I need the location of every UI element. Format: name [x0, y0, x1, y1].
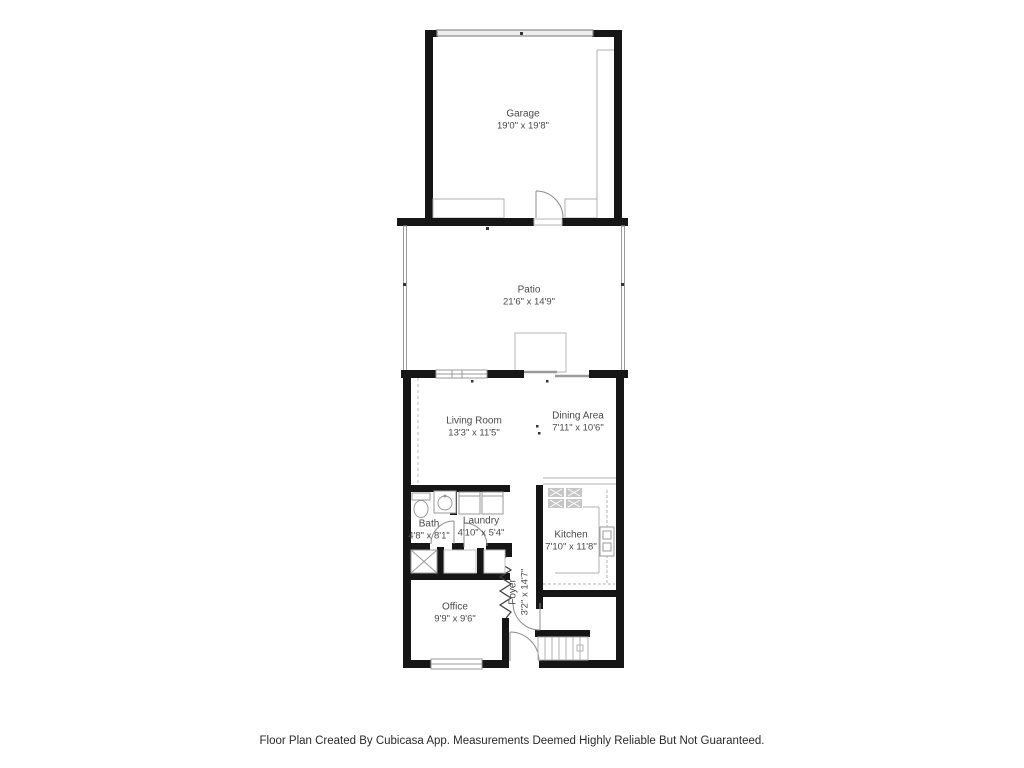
room-label-patio: Patio 21'6" x 14'9": [503, 283, 555, 308]
floor-plan: Garage 19'0" x 19'8" Patio 21'6" x 14'9"…: [0, 0, 1024, 768]
room-label-laundry: Laundry 4'10" x 5'4": [458, 514, 505, 539]
room-dims: 13'3" x 11'5": [446, 427, 502, 439]
living-room-window: [436, 370, 487, 378]
room-label-office: Office 9'9" x 9'6": [434, 600, 476, 625]
room-dims: 21'6" x 14'9": [503, 296, 555, 308]
room-name: Dining Area: [552, 409, 604, 422]
kitchen-appliance: [600, 527, 614, 556]
washer-fixture: [459, 492, 480, 514]
patio-threshold: [534, 219, 562, 225]
room-label-bath: Bath 4'8" x 8'1": [408, 517, 450, 542]
room-dims: 7'10" x 11'8": [545, 541, 596, 553]
patio-landing: [515, 333, 566, 372]
room-dims: 4'10" x 5'4": [458, 527, 505, 539]
room-dims: 3'2" x 14'7": [519, 569, 531, 616]
office-window: [431, 659, 482, 669]
room-label-garage: Garage 19'0" x 19'8": [497, 107, 549, 132]
room-dims: 9'9" x 9'6": [434, 613, 476, 625]
dryer-fixture: [482, 492, 503, 514]
room-label-foyer: Foyer 3'2" x 14'7": [506, 569, 531, 616]
room-name: Laundry: [458, 514, 505, 527]
room-name: Bath: [408, 517, 450, 530]
room-label-dining-area: Dining Area 7'11" x 10'6": [552, 409, 604, 434]
room-name: Patio: [503, 283, 555, 296]
toilet-fixture: [412, 493, 430, 518]
sink-fixture: [434, 491, 456, 513]
garage-interior-lines: [433, 50, 614, 218]
front-door: [510, 632, 539, 661]
stove-fixture: [548, 488, 582, 508]
shower-fixture: [411, 550, 437, 573]
patio-sliding-door: [524, 372, 589, 376]
garage-door: [437, 30, 593, 36]
room-dims: 4'8" x 8'1": [408, 530, 450, 542]
garage-entry-door: [536, 191, 563, 218]
stairs: [538, 637, 588, 660]
room-dims: 7'11" x 10'6": [552, 422, 604, 434]
room-label-kitchen: Kitchen 7'10" x 11'8": [545, 528, 596, 553]
room-dims: 19'0" x 19'8": [497, 120, 549, 132]
garage-patio-wall: [397, 218, 628, 226]
disclaimer-text: Floor Plan Created By Cubicasa App. Meas…: [0, 735, 1024, 747]
room-name: Living Room: [446, 414, 502, 427]
room-name: Office: [434, 600, 476, 613]
room-label-living-room: Living Room 13'3" x 11'5": [446, 414, 502, 439]
foyer-closets: [444, 550, 505, 573]
room-name: Garage: [497, 107, 549, 120]
room-name: Kitchen: [545, 528, 596, 541]
room-name: Foyer: [506, 569, 519, 616]
